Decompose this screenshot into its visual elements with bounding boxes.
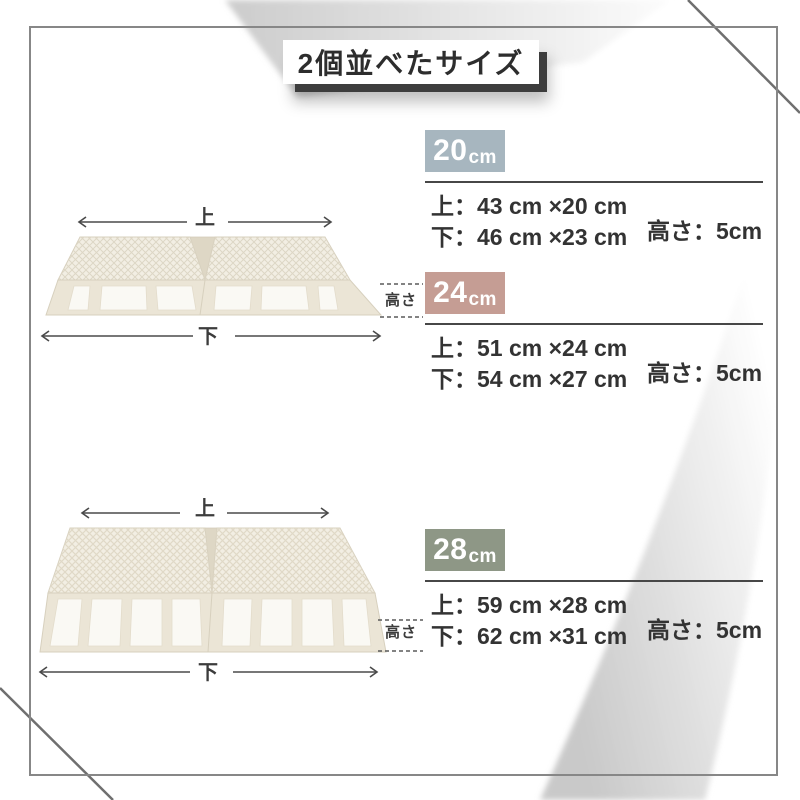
size-badge-number: 20 bbox=[433, 136, 467, 166]
size-badge-unit: cm bbox=[468, 547, 496, 566]
pallet-pair-small bbox=[46, 237, 381, 315]
label-top-large: 上 bbox=[195, 499, 215, 519]
size-badge-20cm: 20 cm bbox=[425, 130, 505, 172]
height-dimension: 高さ：5cm bbox=[647, 212, 762, 246]
size-section-20cm: 20 cm 上：43 cm ×20 cm 下：46 cm ×23 cm 高さ：5… bbox=[425, 130, 773, 253]
section-divider bbox=[425, 323, 763, 325]
page-title: 2個並べたサイズ bbox=[298, 42, 525, 82]
size-section-24cm: 24 cm 上：51 cm ×24 cm 下：54 cm ×27 cm 高さ：5… bbox=[425, 272, 773, 395]
diagram-small-pallets: 上 下 高さ bbox=[30, 200, 425, 350]
size-badge-unit: cm bbox=[468, 290, 496, 309]
section-divider bbox=[425, 181, 763, 183]
section-divider bbox=[425, 580, 763, 582]
size-badge-unit: cm bbox=[468, 148, 496, 167]
height-dimension: 高さ：5cm bbox=[647, 611, 762, 645]
label-bottom-large: 下 bbox=[198, 663, 218, 683]
size-badge-number: 28 bbox=[433, 535, 467, 565]
deco-swoosh bbox=[540, 165, 790, 800]
height-dimension: 高さ：5cm bbox=[647, 354, 762, 388]
label-height-large: 高さ bbox=[385, 625, 417, 640]
size-badge-number: 24 bbox=[433, 278, 467, 308]
size-badge-24cm: 24 cm bbox=[425, 272, 505, 314]
deco-corner-line-top-right bbox=[688, 0, 800, 113]
size-section-28cm: 28 cm 上：59 cm ×28 cm 下：62 cm ×31 cm 高さ：5… bbox=[425, 529, 773, 652]
diagram-large-pallets: 上 下 高さ bbox=[30, 495, 425, 690]
label-height-small: 高さ bbox=[385, 293, 417, 308]
label-bottom-small: 下 bbox=[198, 327, 218, 347]
size-badge-28cm: 28 cm bbox=[425, 529, 505, 571]
pallet-illustration-large bbox=[30, 495, 425, 690]
product-size-infographic: 2個並べたサイズ bbox=[0, 0, 800, 800]
title-box: 2個並べたサイズ bbox=[283, 40, 539, 84]
deco-corner-line-bottom-left bbox=[0, 688, 113, 800]
pallet-pair-large bbox=[40, 528, 386, 652]
label-top-small: 上 bbox=[195, 208, 215, 228]
pallet-illustration-small bbox=[30, 200, 425, 350]
